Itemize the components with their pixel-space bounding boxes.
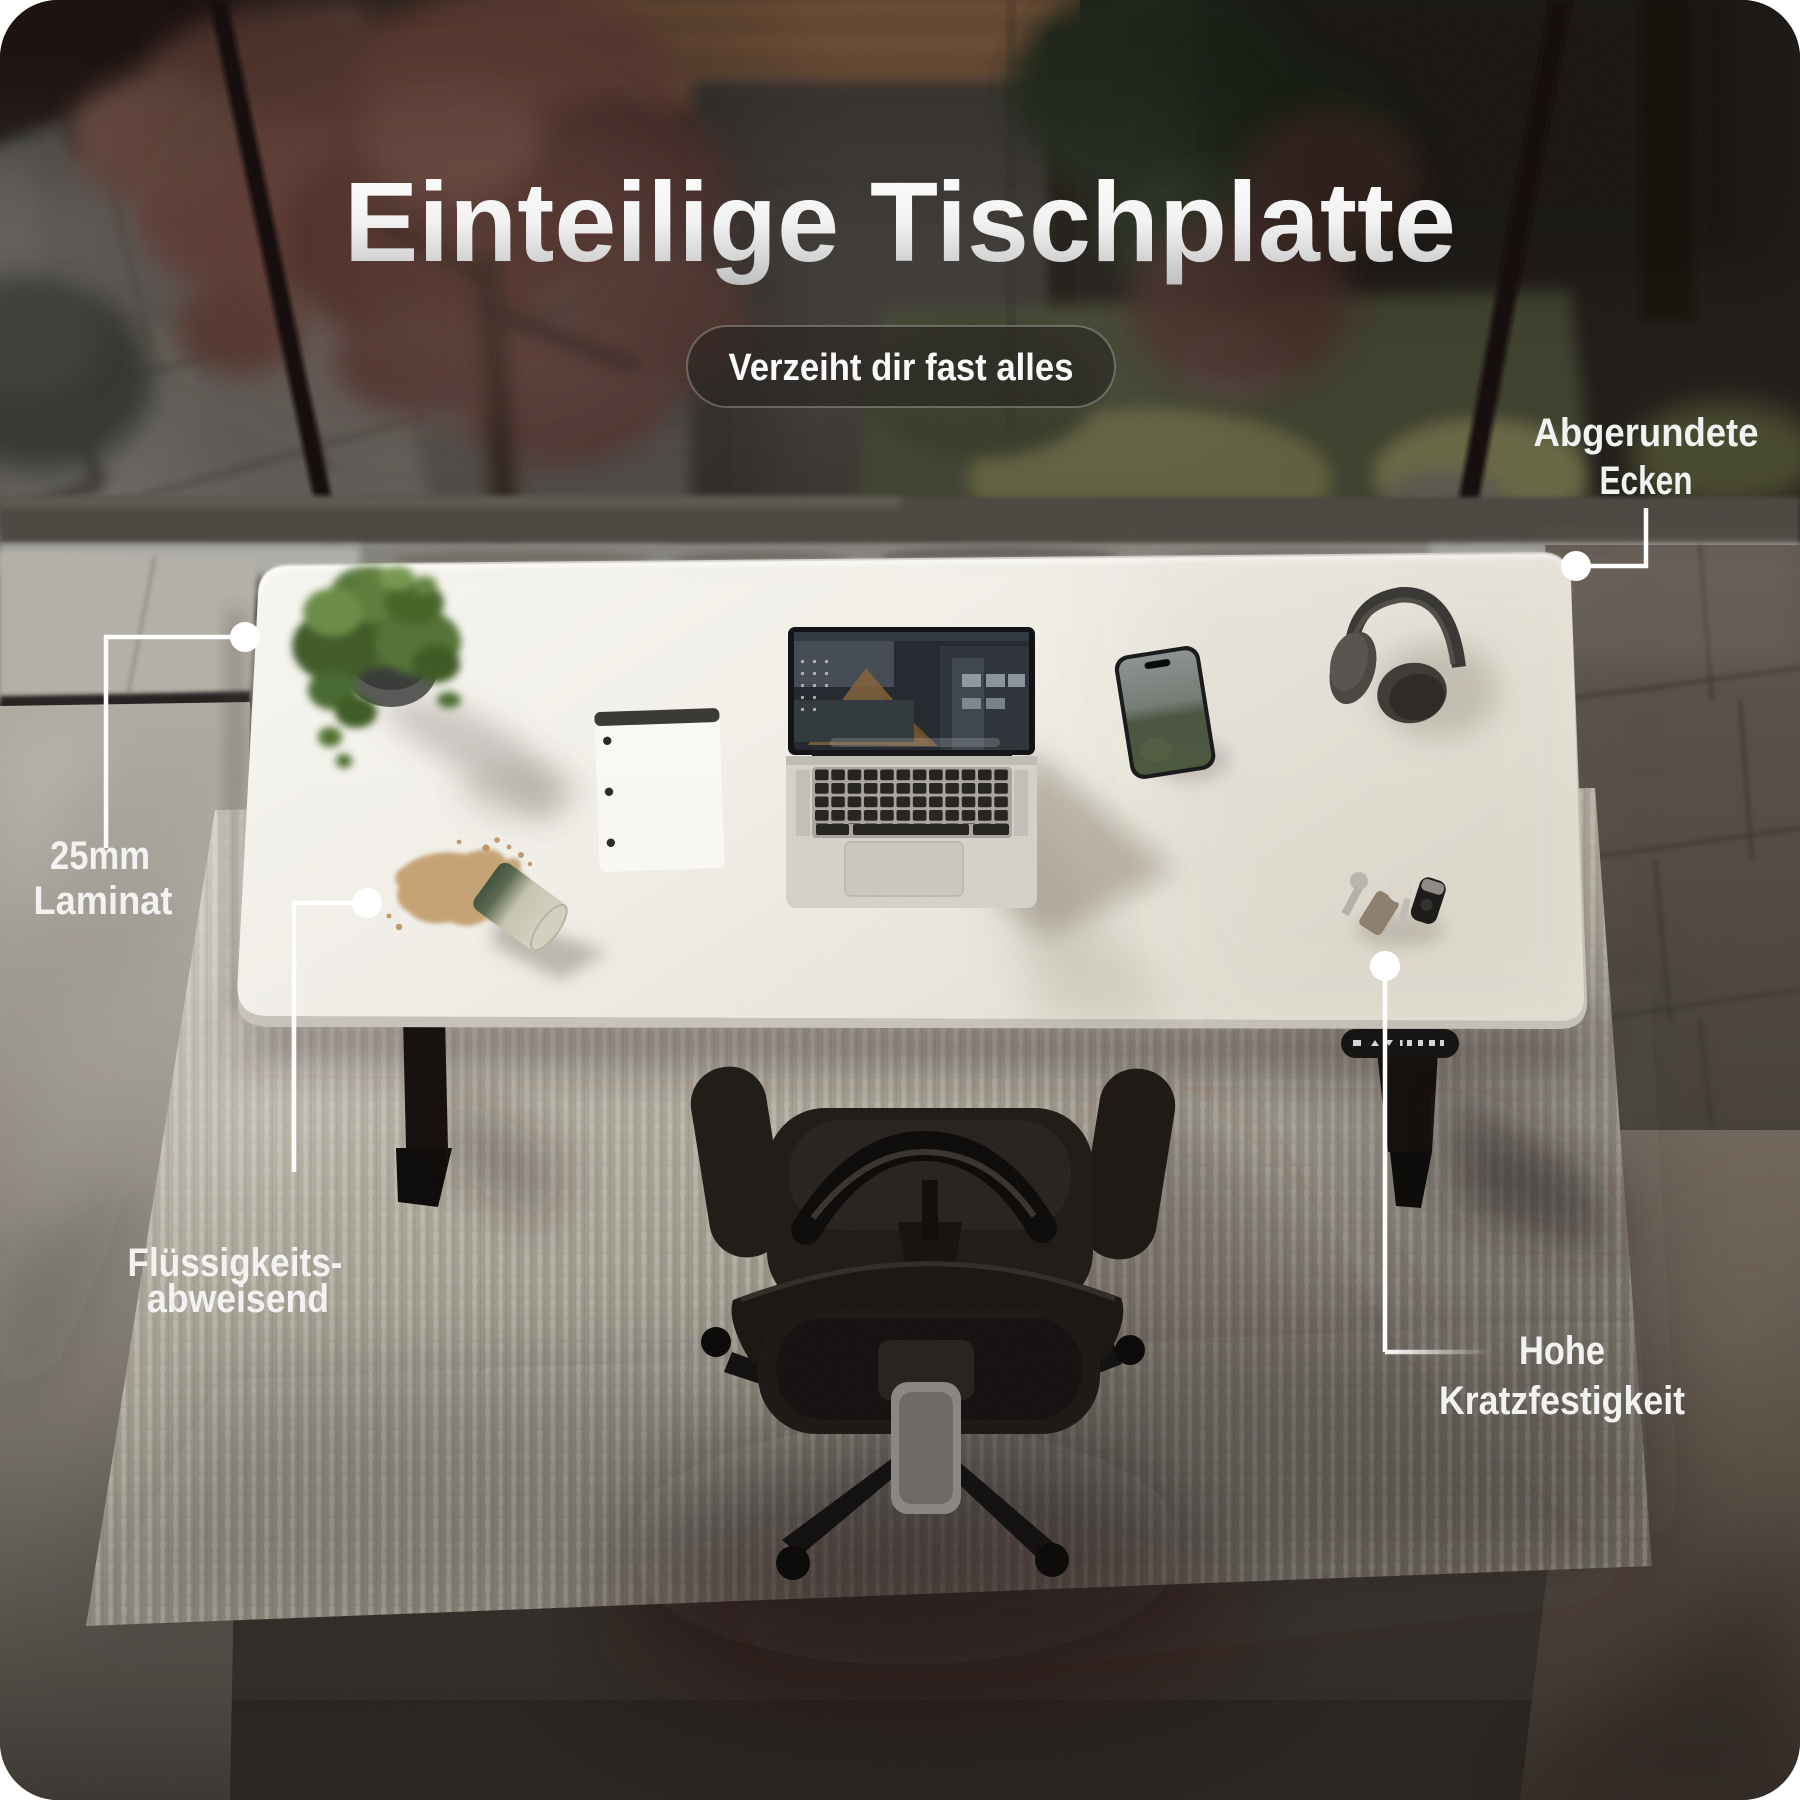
svg-text:Hohe: Hohe	[1519, 1329, 1605, 1373]
svg-text:Einteilige Tischplatte: Einteilige Tischplatte	[344, 159, 1456, 285]
svg-text:Kratzfestigkeit: Kratzfestigkeit	[1439, 1379, 1685, 1423]
svg-text:abweisend: abweisend	[147, 1277, 329, 1321]
svg-text:25mm: 25mm	[50, 834, 150, 878]
svg-text:Laminat: Laminat	[34, 879, 173, 923]
svg-text:Abgerundete: Abgerundete	[1534, 411, 1759, 455]
svg-text:Verzeiht dir fast alles: Verzeiht dir fast alles	[729, 347, 1074, 389]
svg-text:Ecken: Ecken	[1600, 459, 1693, 503]
